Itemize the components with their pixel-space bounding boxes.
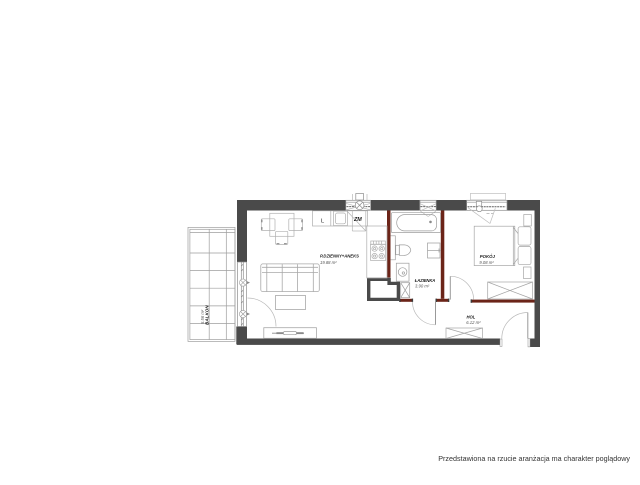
svg-text:9.08 m²: 9.08 m² — [479, 260, 494, 265]
svg-text:HOL: HOL — [467, 314, 476, 319]
svg-text:6.12 m²: 6.12 m² — [466, 320, 481, 325]
svg-text:ŁAZIENKA: ŁAZIENKA — [414, 278, 435, 283]
svg-text:POKÓJ: POKÓJ — [480, 254, 496, 259]
svg-text:3.90 m²: 3.90 m² — [415, 284, 430, 289]
svg-text:P.DZIENNY+ANEKS: P.DZIENNY+ANEKS — [320, 254, 359, 259]
svg-text:ZM: ZM — [353, 217, 362, 223]
svg-text:BALKON: BALKON — [204, 305, 209, 325]
svg-text:Przedstawiona na rzucie aranża: Przedstawiona na rzucie aranżacja ma cha… — [438, 454, 630, 463]
svg-text:19.88 m²: 19.88 m² — [320, 260, 337, 265]
svg-text:5.56 m²: 5.56 m² — [200, 309, 205, 324]
